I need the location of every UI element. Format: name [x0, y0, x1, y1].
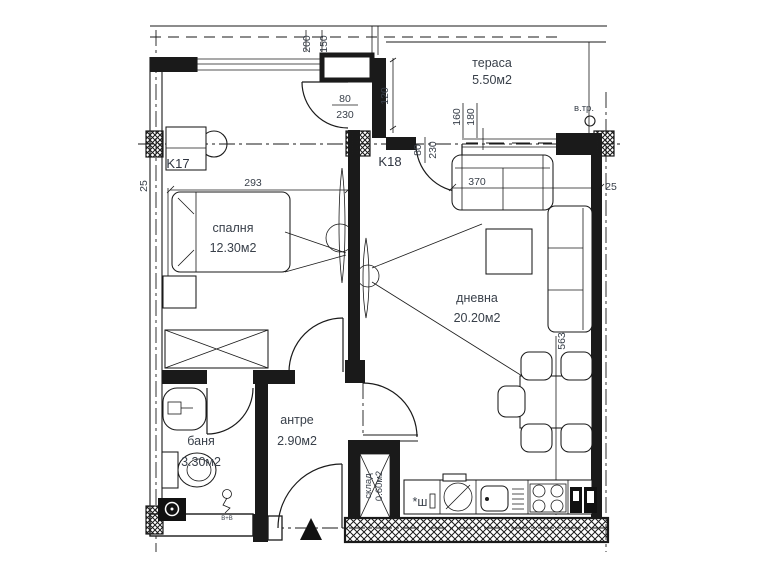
sofa-right	[548, 206, 592, 332]
dim-180: 180	[465, 108, 477, 126]
room-area: 2.90м2	[277, 434, 317, 448]
floor-drain-icon	[158, 498, 186, 521]
dim-door-width: 80	[339, 93, 351, 105]
floor-plan-page: *ш	[0, 0, 758, 564]
door-bathroom	[207, 388, 253, 434]
room-area: 20.20м2	[454, 311, 501, 325]
door-hall-living	[363, 383, 417, 437]
room-label-storage: склад 0.60м2	[363, 471, 385, 501]
dim-25-right: 25	[605, 181, 617, 193]
dim-200: 200	[301, 35, 313, 53]
vent-label: в.тр.	[574, 103, 594, 114]
chair	[521, 424, 552, 452]
dim-150: 150	[318, 35, 330, 53]
terrace-window	[462, 139, 556, 147]
floor-plan: *ш	[0, 0, 758, 564]
vent-annotation: в.тр.	[574, 103, 595, 126]
chair	[561, 424, 592, 452]
entrance-arrow-icon	[300, 518, 322, 540]
room-name: склад	[363, 473, 374, 499]
room-area: 12.30м2	[210, 241, 257, 255]
room-label-hall: антре 2.90м2	[277, 413, 317, 448]
column-right	[594, 131, 614, 156]
dim-25-left: 25	[138, 180, 150, 192]
room-name: дневна	[456, 291, 498, 305]
vent-icon	[585, 116, 595, 126]
dim-293: 293	[244, 177, 262, 189]
kitchen: *ш	[404, 474, 597, 514]
room-label-bath: баня 3.30м2	[181, 434, 221, 469]
dim-370: 370	[468, 176, 486, 188]
room-area: 5.50м2	[472, 73, 512, 87]
dim-terrace-door: 80 230	[412, 137, 439, 163]
dim-door-width: 80	[412, 144, 424, 156]
dim-160: 160	[451, 108, 463, 126]
nightstand	[163, 276, 196, 308]
dim-120: 120	[379, 87, 391, 105]
tv-panel-bedroom	[285, 168, 354, 283]
door-entrance	[278, 464, 342, 528]
column-label-k18: K18	[378, 154, 401, 169]
column-k17	[146, 131, 163, 157]
room-label-terrace: тераса 5.50м2	[472, 56, 512, 87]
bottom-wall-hatch	[345, 518, 608, 542]
bedroom-furniture	[163, 127, 354, 368]
kitchen-symbol: *ш	[413, 495, 428, 509]
dim-563: 563	[556, 332, 568, 350]
sofa	[452, 155, 553, 210]
room-name: баня	[187, 434, 215, 448]
dim-door-height: 230	[427, 141, 439, 159]
door-bedroom-hall	[289, 318, 343, 372]
room-area: 0.60м2	[374, 471, 385, 501]
column-label-k17: K17	[166, 156, 189, 171]
riser-label: В+В	[221, 516, 233, 522]
room-name: тераса	[472, 56, 512, 70]
chair	[521, 352, 552, 380]
dim-door-height: 230	[336, 109, 354, 121]
bedroom-window	[197, 57, 322, 72]
room-label-living: дневна 20.20м2	[454, 291, 501, 325]
column-k18	[346, 131, 370, 156]
room-name: антре	[280, 413, 314, 427]
room-name: спалня	[213, 221, 254, 235]
bath-sink-icon	[163, 388, 206, 430]
riser-icon: В+В	[221, 490, 233, 523]
wall-pier	[322, 55, 372, 80]
wardrobe	[165, 330, 268, 368]
chair	[561, 352, 592, 380]
chair	[498, 386, 525, 417]
room-area: 3.30м2	[181, 455, 221, 469]
coffee-table	[486, 229, 532, 274]
